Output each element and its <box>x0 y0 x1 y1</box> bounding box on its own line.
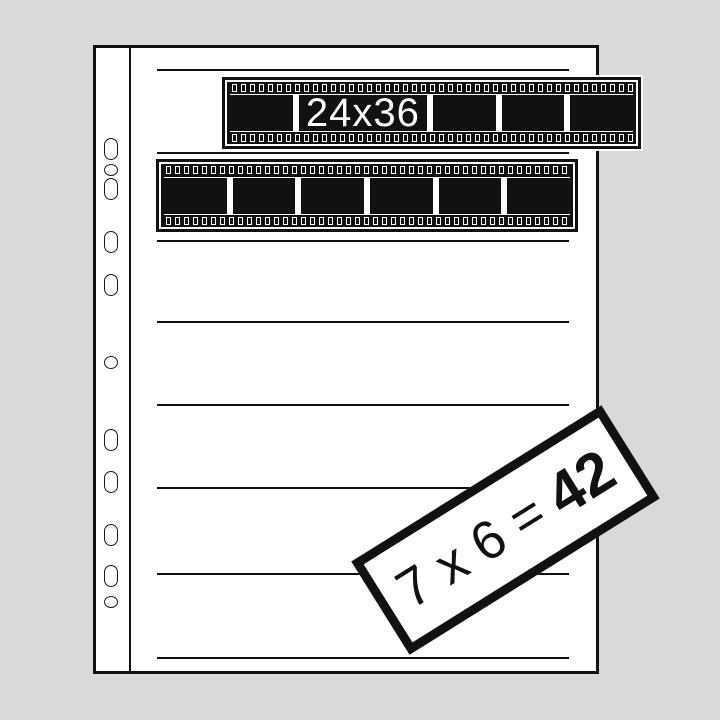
film-frame <box>301 178 364 214</box>
pocket-seam-line <box>157 404 569 406</box>
binder-hole <box>104 565 118 587</box>
negative-sleeve-illustration: 24x36 7 x 6 = 42 <box>0 0 720 720</box>
binder-margin-divider <box>129 48 131 671</box>
pocket-seam-line <box>157 657 569 659</box>
sprocket-holes-row <box>164 166 570 174</box>
pocket-seam-line <box>157 321 569 323</box>
film-format-label: 24x36 <box>306 93 420 133</box>
film-frames-row: 24x36 <box>230 94 633 132</box>
film-frame <box>164 178 227 214</box>
binder-hole <box>104 274 118 296</box>
pocket-seam-line <box>157 69 569 71</box>
binder-hole <box>104 524 118 546</box>
film-frame <box>370 178 433 214</box>
pocket-seam-line <box>157 152 569 154</box>
film-frame <box>230 95 293 131</box>
film-frame <box>433 95 496 131</box>
sprocket-holes-row <box>230 84 633 92</box>
binder-hole <box>104 138 118 160</box>
film-strip-blank <box>156 159 578 232</box>
binder-hole <box>104 231 118 253</box>
film-frame <box>233 178 296 214</box>
binder-hole <box>104 178 118 200</box>
capacity-result: 42 <box>537 440 625 526</box>
binder-hole <box>104 356 118 369</box>
sprocket-holes-row <box>164 217 570 225</box>
film-frames-row <box>164 177 570 215</box>
binder-hole <box>104 596 118 608</box>
pocket-seam-line <box>157 240 569 242</box>
film-frame <box>439 178 502 214</box>
film-strip-24x36: 24x36 <box>222 77 641 149</box>
film-strip-body: 24x36 <box>227 82 636 144</box>
film-frame <box>502 95 565 131</box>
film-frame <box>507 178 570 214</box>
binder-hole <box>104 429 118 451</box>
binder-hole <box>104 164 118 176</box>
film-format-frame: 24x36 <box>299 95 427 131</box>
film-strip-body <box>161 164 573 227</box>
binder-hole <box>104 471 118 493</box>
film-frame <box>570 95 633 131</box>
sprocket-holes-row <box>230 134 633 142</box>
